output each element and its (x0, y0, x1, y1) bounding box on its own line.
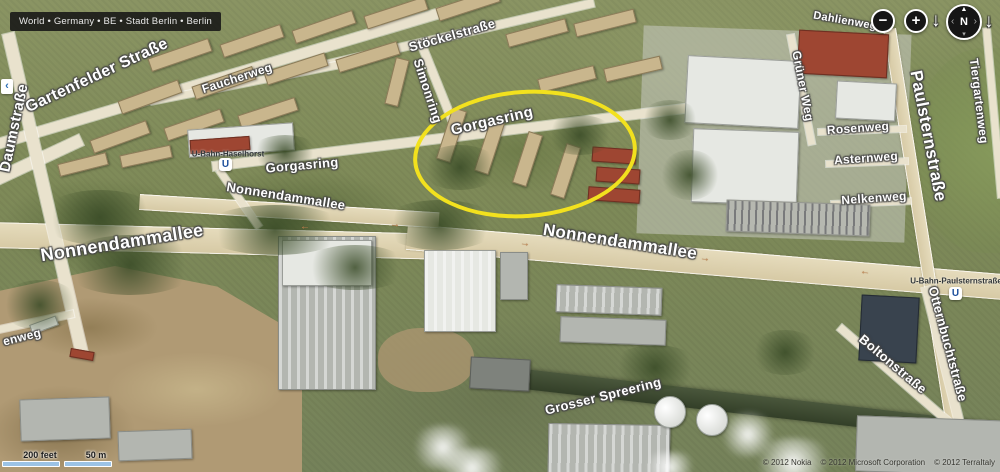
copyright-line: © 2012 Nokia© 2012 Microsoft Corporation… (754, 458, 995, 467)
building (537, 65, 597, 93)
building (560, 316, 667, 346)
ubahn-paulsternstrasse-icon: U (949, 287, 962, 300)
building (797, 30, 889, 79)
tree-canopy (750, 330, 820, 375)
scale-bar-imperial (2, 461, 60, 467)
ubahn-paulsternstrasse-caption: U-Bahn-Paulsternstraße (910, 277, 1000, 286)
compass-left-icon[interactable]: ‹ (951, 16, 954, 27)
scale-bar-metric (64, 461, 112, 467)
building (556, 284, 663, 316)
pan-down-arrow-left-icon[interactable]: ↓ (931, 10, 941, 32)
copyright-nokia: © 2012 Nokia (763, 458, 812, 467)
building (469, 356, 531, 391)
building (117, 429, 192, 462)
road-direction-arrow: → (859, 267, 870, 279)
compass-up-icon[interactable]: ▲ (961, 6, 968, 13)
aerial-map-canvas[interactable]: →→→→→→→ Stöckelstraße Gartenfelder Straß… (0, 0, 1000, 472)
road-direction-arrow: → (519, 237, 530, 249)
tree-canopy (0, 280, 80, 330)
building (57, 152, 109, 177)
building (500, 252, 528, 300)
tree-canopy (300, 245, 410, 290)
building (384, 57, 409, 107)
road-direction-arrow: → (300, 223, 310, 234)
tree-canopy (660, 150, 720, 200)
building (219, 24, 284, 58)
pan-down-arrow-right-icon[interactable]: ↓ (984, 11, 994, 33)
zoom-in-button[interactable]: + (904, 9, 928, 33)
map-edge-left-chevron[interactable]: ‹ (1, 79, 13, 94)
smoke-plume (640, 452, 700, 472)
road-direction-arrow: → (390, 219, 401, 231)
scale-imperial-label: 200 feet (23, 450, 57, 460)
street-label-dahlienweg: Dahlienweg (812, 10, 877, 33)
building (835, 80, 897, 121)
building (573, 9, 637, 38)
compass-down-icon[interactable]: ▾ (962, 30, 966, 38)
breadcrumb[interactable]: World • Germany • BE • Stadt Berlin • Be… (10, 12, 221, 31)
road-direction-arrow: → (699, 252, 710, 264)
copyright-imagery: © 2012 TerraItaly (934, 458, 995, 467)
building (654, 396, 686, 428)
compass-right-icon[interactable]: › (974, 16, 977, 27)
compass-north-label[interactable]: N (960, 16, 968, 28)
building (119, 145, 173, 169)
building (89, 120, 150, 154)
ubahn-haselhorst-icon: U (219, 158, 232, 171)
building (19, 396, 110, 441)
tree-canopy (640, 100, 700, 140)
building (684, 55, 801, 129)
copyright-microsoft: © 2012 Microsoft Corporation (821, 458, 926, 467)
scale-metric-label: 50 m (86, 450, 107, 460)
zoom-out-button[interactable]: − (871, 9, 895, 33)
building (424, 250, 496, 332)
compass-rotate-control[interactable]: ▲ ‹ N › ▾ (946, 4, 982, 40)
dirt-patch (378, 328, 474, 392)
